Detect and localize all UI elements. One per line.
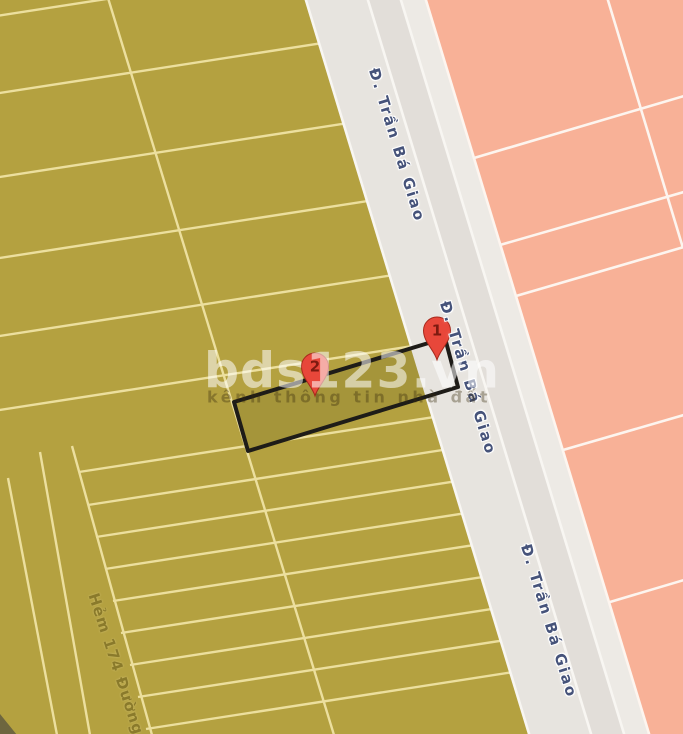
map-canvas[interactable]: 2 1 Đ. Trần Bá Giao Đ. Trần Bá Giao Đ. T… [0,0,683,734]
marker-number: 1 [432,322,442,340]
watermark-tagline: kênh thông tin nhà đất [207,388,491,407]
corner-parcel [0,714,17,734]
